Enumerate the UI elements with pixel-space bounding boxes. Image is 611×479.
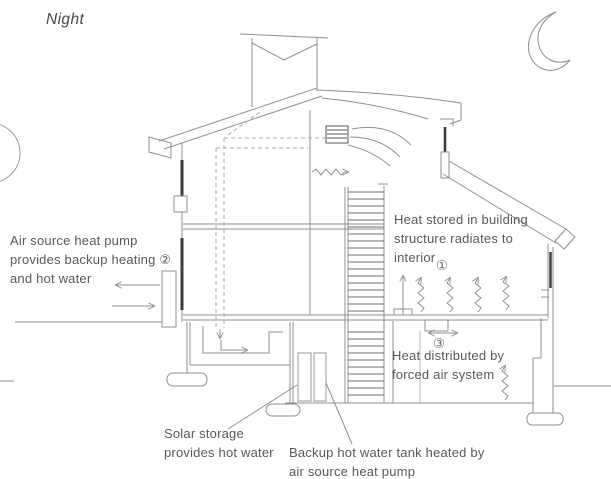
vent-grille-icon xyxy=(326,126,348,143)
marker-1-icon: ① xyxy=(436,259,448,273)
airflow-arcs xyxy=(348,127,411,166)
label-solar-storage: Solar storage provides hot water xyxy=(164,425,304,463)
crescent-moon-icon xyxy=(528,12,570,70)
cupola xyxy=(240,34,328,107)
pipe-loop xyxy=(203,326,283,353)
partial-circle-icon xyxy=(0,123,20,183)
clerestory-window xyxy=(440,119,453,178)
label-backup-tank: Backup hot water tank heated by air sour… xyxy=(289,444,519,479)
label-air-source-heat-pump: Air source heat pump provides backup hea… xyxy=(10,232,185,289)
storage-tanks xyxy=(298,353,326,401)
label-heat-stored: Heat stored in building structure radiat… xyxy=(394,211,569,268)
stairs xyxy=(345,184,388,403)
diagram-canvas: Night Air source heat pump provides back… xyxy=(0,0,611,479)
scene-title: Night xyxy=(46,9,84,31)
label-heat-distributed: Heat distributed by forced air system xyxy=(392,347,552,385)
